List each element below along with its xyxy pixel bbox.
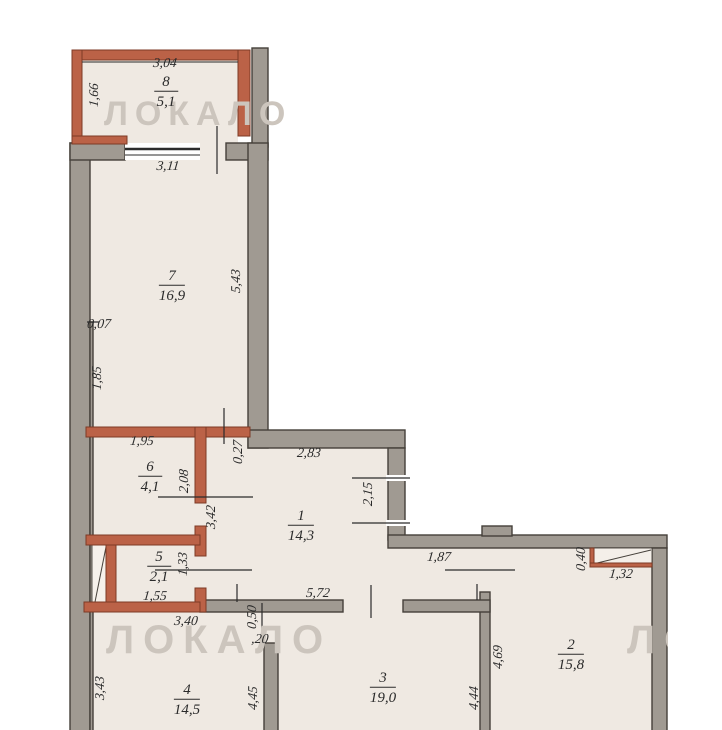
- dim-room2-side: 4,69: [490, 644, 506, 669]
- room-7-number: 7: [159, 268, 185, 286]
- room-8-number: 8: [154, 74, 178, 92]
- room-6-number: 6: [138, 459, 162, 477]
- watermark-top: ЛОКАЛО: [104, 97, 292, 131]
- wall-hall-top: [388, 535, 667, 548]
- dim-room7-side: 5,43: [228, 268, 244, 293]
- wall-room3-top-left: [200, 600, 343, 612]
- wall-room5-left: [106, 545, 116, 603]
- dim-stub-050: 0,50: [244, 604, 260, 629]
- room-3-number: 3: [370, 670, 396, 688]
- dim-room3-side: 4,44: [466, 685, 482, 710]
- dim-room4-side: 3,43: [92, 675, 108, 700]
- room-label-8: 8 5,1: [154, 74, 178, 111]
- room-label-7: 7 16,9: [159, 268, 185, 305]
- dim-wall-offset: 0,07: [86, 316, 111, 332]
- dim-room4-right: 4,45: [245, 685, 261, 710]
- wall-corridor-red-upper: [195, 427, 206, 503]
- balcony-door-opening: [200, 143, 226, 160]
- dim-hall-bottom: 5,72: [305, 585, 330, 601]
- dim-balcony-top: 3,04: [152, 55, 177, 71]
- room-label-4: 4 14,5: [174, 682, 200, 719]
- dim-room6-side: 2,08: [176, 468, 192, 493]
- room-2-number: 2: [558, 637, 584, 655]
- dim-room7-top: 3,11: [156, 158, 180, 174]
- wall-balcony-bottom-stub: [72, 136, 127, 144]
- room-6-area: 4,1: [138, 476, 162, 495]
- watermark-bottom: ЛОКАЛО: [106, 620, 332, 660]
- wall-room5-top: [86, 535, 200, 545]
- room-1-area: 14,3: [288, 525, 314, 544]
- watermark-right-text: ЛОКАЛО: [627, 620, 668, 662]
- room-1-number: 1: [288, 508, 314, 526]
- room-3-area: 19,0: [370, 687, 396, 706]
- room-label-3: 3 19,0: [370, 670, 396, 707]
- dim-balcony-side: 1,66: [86, 82, 102, 107]
- room-2-area: 15,8: [558, 654, 584, 673]
- room-label-6: 6 4,1: [138, 459, 162, 496]
- dim-closet-side: 0,40: [573, 546, 589, 571]
- wall-room1-top: [248, 430, 405, 448]
- dim-step-027: 0,27: [230, 439, 246, 464]
- wall-outer-right-tall: [248, 143, 268, 448]
- wall-balcony-left: [72, 50, 82, 143]
- wall-room6-top: [86, 427, 250, 437]
- dim-room6-top: 1,95: [129, 433, 154, 449]
- dim-corridor-side: 3,42: [203, 504, 219, 529]
- shaft-strip: [92, 545, 107, 609]
- dim-room1-side: 2,15: [360, 481, 376, 506]
- dim-room7-side-lower: 1,85: [89, 365, 105, 390]
- room-5-number: 5: [147, 549, 171, 567]
- dim-room4-top: 3,40: [173, 613, 198, 629]
- floor-plan-page: ЛОКАЛО ЛОКАЛО ЛОКАЛО 8 5,1 7 16,9 6 4,1 …: [0, 0, 722, 730]
- dim-wall-020: ,20: [251, 631, 270, 647]
- wall-room1-right: [388, 448, 405, 540]
- room-4-area: 14,5: [174, 699, 200, 718]
- room-label-2: 2 15,8: [558, 637, 584, 674]
- dim-hall-width: 1,87: [426, 549, 451, 565]
- wall-top-left-segment: [70, 143, 125, 160]
- wall-entrance-pier: [482, 526, 512, 536]
- room-4-number: 4: [174, 682, 200, 700]
- wall-room3-top-right: [403, 600, 490, 612]
- dim-room1-top: 2,83: [296, 445, 321, 461]
- dim-closet-bottom: 1,32: [608, 566, 633, 582]
- dim-room5-bottom: 1,55: [142, 588, 167, 604]
- room-8-area: 5,1: [154, 91, 178, 110]
- watermark-right-clipped: ЛОКАЛО: [627, 620, 668, 666]
- room-label-1: 1 14,3: [288, 508, 314, 545]
- room-7-area: 16,9: [159, 285, 185, 304]
- room-label-5: 5 2,1: [147, 549, 171, 586]
- dim-room5-side: 1,33: [175, 551, 191, 576]
- closet-room2: [592, 548, 652, 565]
- room-5-area: 2,1: [147, 566, 171, 585]
